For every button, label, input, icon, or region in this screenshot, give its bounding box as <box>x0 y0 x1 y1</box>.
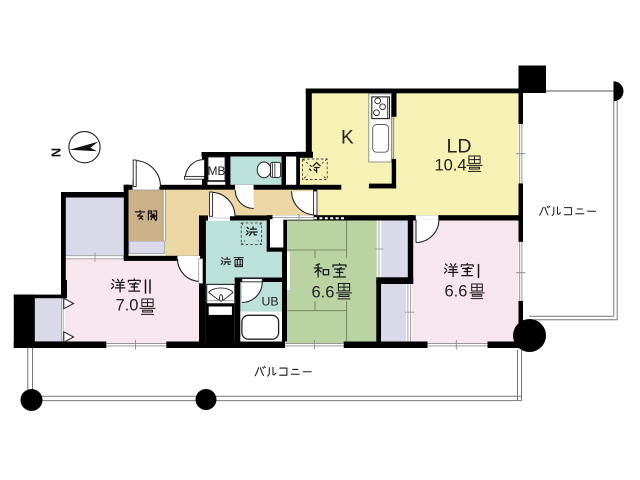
svg-text:6.6: 6.6 <box>445 283 468 301</box>
svg-text:K: K <box>341 128 354 149</box>
svg-text:10.4: 10.4 <box>435 157 467 175</box>
svg-text:N: N <box>49 148 64 157</box>
svg-text:6.6: 6.6 <box>312 284 335 302</box>
svg-text:UB: UB <box>262 294 279 308</box>
svg-text:MB: MB <box>208 164 226 178</box>
svg-text:LD: LD <box>447 136 472 158</box>
svg-text:7.0: 7.0 <box>116 297 139 315</box>
